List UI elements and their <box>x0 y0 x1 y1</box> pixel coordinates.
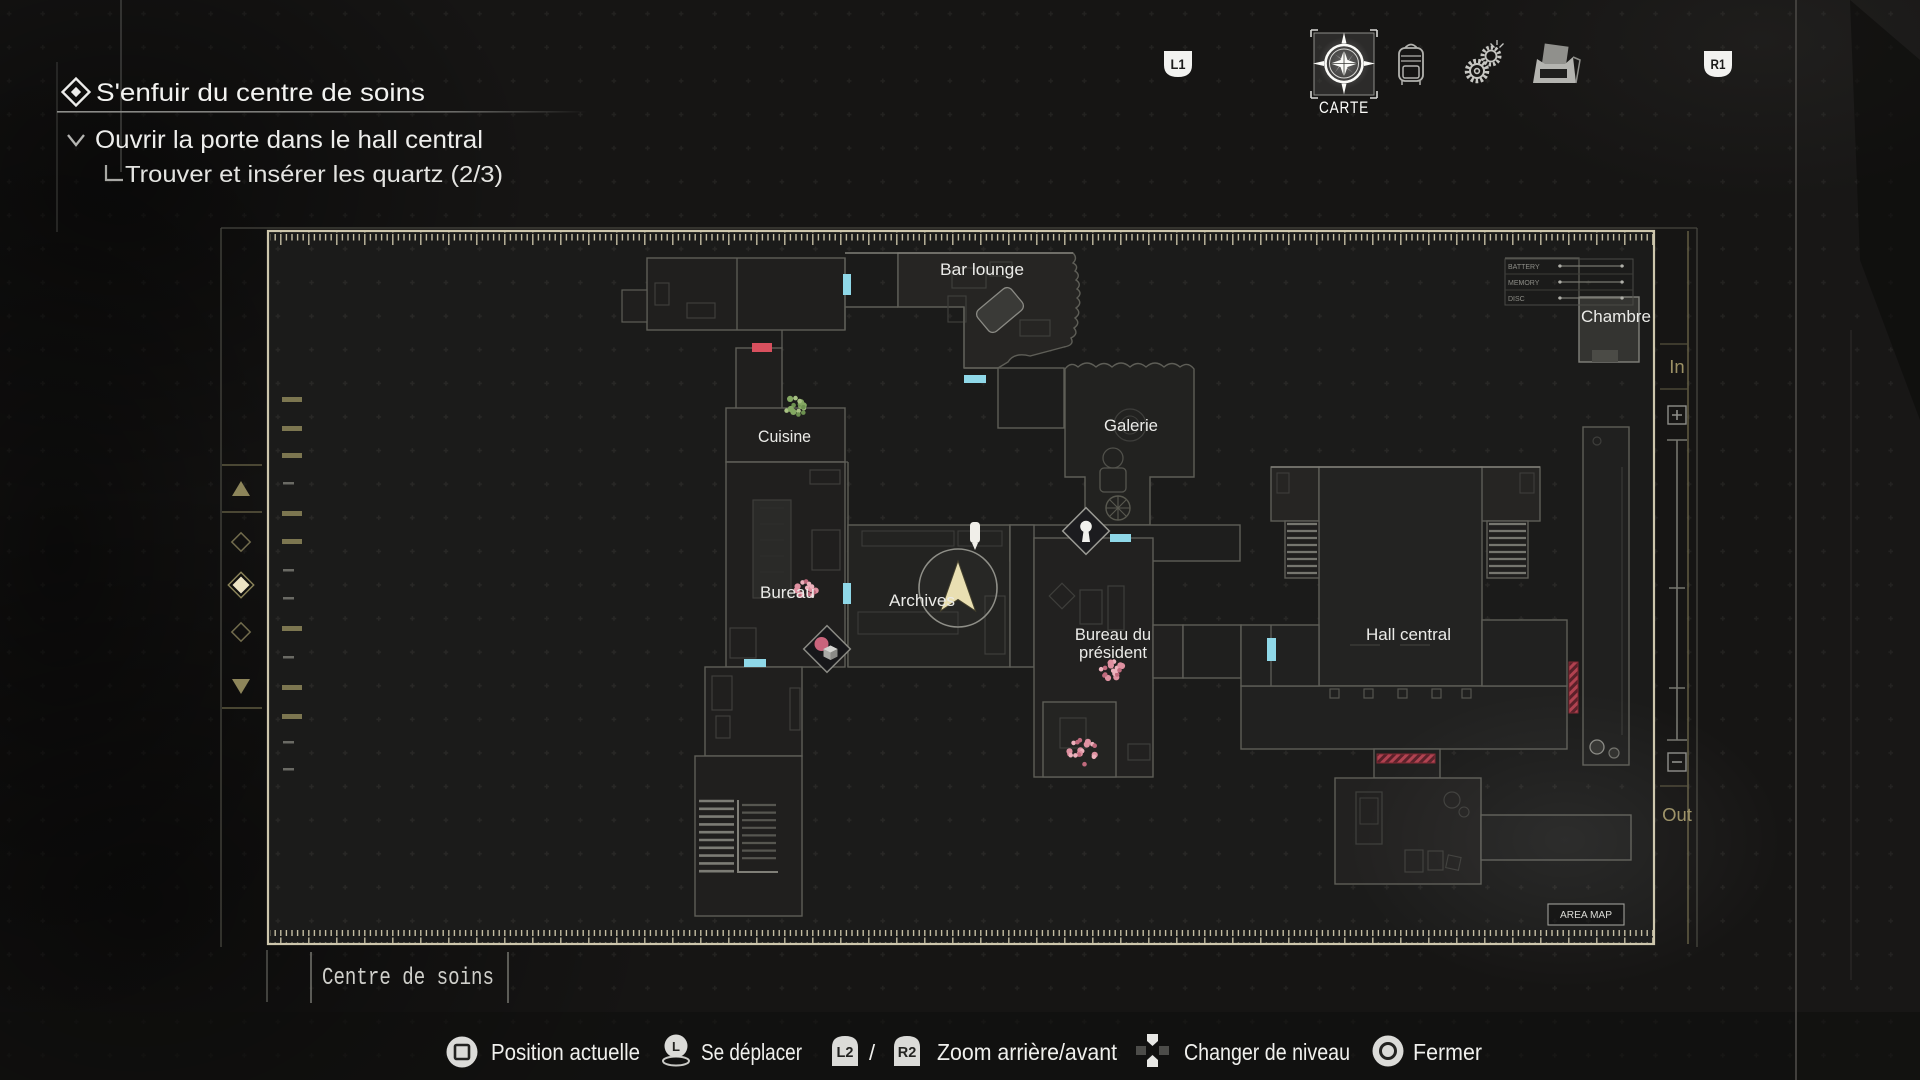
svg-text:Chambre: Chambre <box>1581 307 1651 326</box>
svg-text:AREA MAP: AREA MAP <box>1560 909 1612 921</box>
svg-text:Trouver et insérer les quartz: Trouver et insérer les quartz (2/3) <box>125 161 503 187</box>
svg-text:Ouvrir la porte dans le hall c: Ouvrir la porte dans le hall central <box>95 126 483 154</box>
svg-text:Changer de niveau: Changer de niveau <box>1184 1039 1350 1065</box>
svg-text:L2: L2 <box>837 1045 854 1061</box>
svg-text:Galerie: Galerie <box>1104 416 1158 435</box>
svg-text:Archives: Archives <box>889 591 955 610</box>
svg-text:Zoom arrière/avant: Zoom arrière/avant <box>937 1039 1117 1065</box>
svg-text:Bureau: Bureau <box>760 583 815 602</box>
svg-text:Hall central: Hall central <box>1366 625 1451 644</box>
svg-text:L: L <box>672 1039 680 1054</box>
svg-text:Fermer: Fermer <box>1413 1039 1482 1065</box>
svg-text:BATTERY: BATTERY <box>1508 264 1540 271</box>
svg-text:CARTE: CARTE <box>1319 98 1369 117</box>
svg-text:Centre de soins: Centre de soins <box>322 965 494 992</box>
svg-text:MEMORY: MEMORY <box>1508 280 1540 287</box>
svg-text:R1: R1 <box>1711 57 1726 72</box>
svg-text:Se déplacer: Se déplacer <box>701 1039 802 1065</box>
svg-text:L1: L1 <box>1171 57 1186 72</box>
svg-text:/: / <box>869 1040 876 1065</box>
svg-text:R2: R2 <box>898 1045 917 1061</box>
svg-text:Cuisine: Cuisine <box>758 427 811 446</box>
svg-text:S'enfuir du centre de soins: S'enfuir du centre de soins <box>96 79 425 107</box>
svg-text:président: président <box>1079 644 1147 662</box>
svg-text:DISC: DISC <box>1508 296 1525 303</box>
svg-text:Position actuelle: Position actuelle <box>491 1039 640 1065</box>
svg-text:Bureau du: Bureau du <box>1075 626 1151 644</box>
svg-text:Bar lounge: Bar lounge <box>940 260 1024 279</box>
svg-text:In: In <box>1669 356 1684 377</box>
